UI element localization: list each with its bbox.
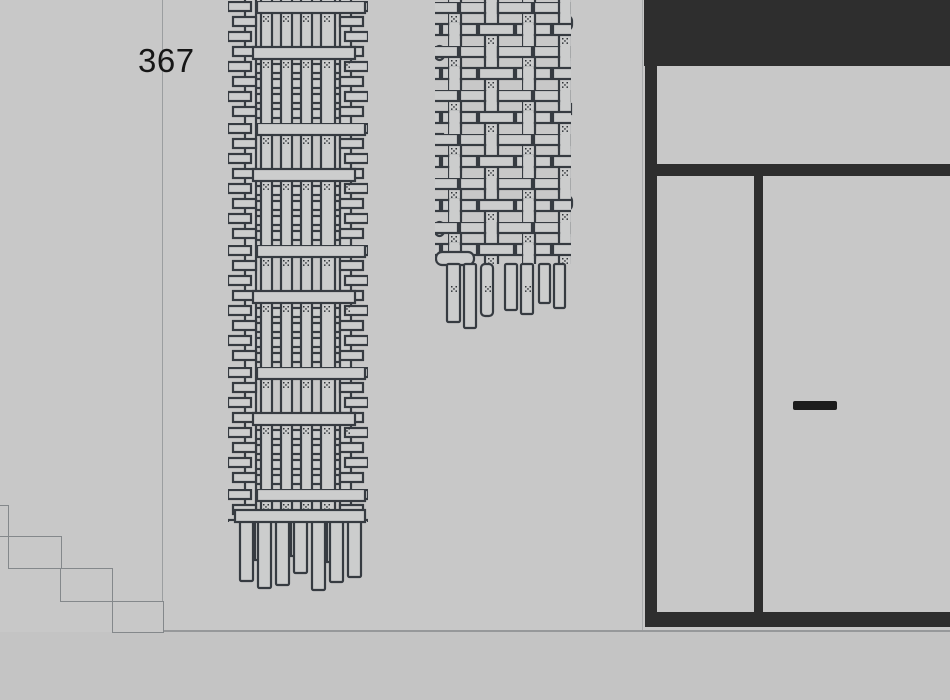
woven-hanging-right [435,0,575,334]
left-hanging-fringe [235,510,365,590]
woven-hanging-left [228,0,368,594]
ground-area [0,632,950,700]
transom-pane [657,66,950,164]
left-hanging-weave [228,0,368,522]
right-hanging-weave [435,0,571,264]
stair-step [60,568,113,602]
stair-step [112,601,164,633]
door-pane [763,176,950,612]
corner-edge-line [642,0,643,630]
stair-step [0,505,9,537]
bottom-sill-bar [645,612,950,627]
left-mullion [645,60,657,627]
wall-edge-line [162,0,163,632]
door-handle [793,401,837,410]
side-pane [657,176,754,612]
storefront-elevation-scene: 367 [0,0,950,700]
transom-bar [645,164,950,176]
ground-line [163,630,950,632]
stair-step [8,536,62,569]
fascia-beam [644,0,950,66]
center-mullion [754,176,763,612]
address-number-label: 367 [138,42,195,80]
